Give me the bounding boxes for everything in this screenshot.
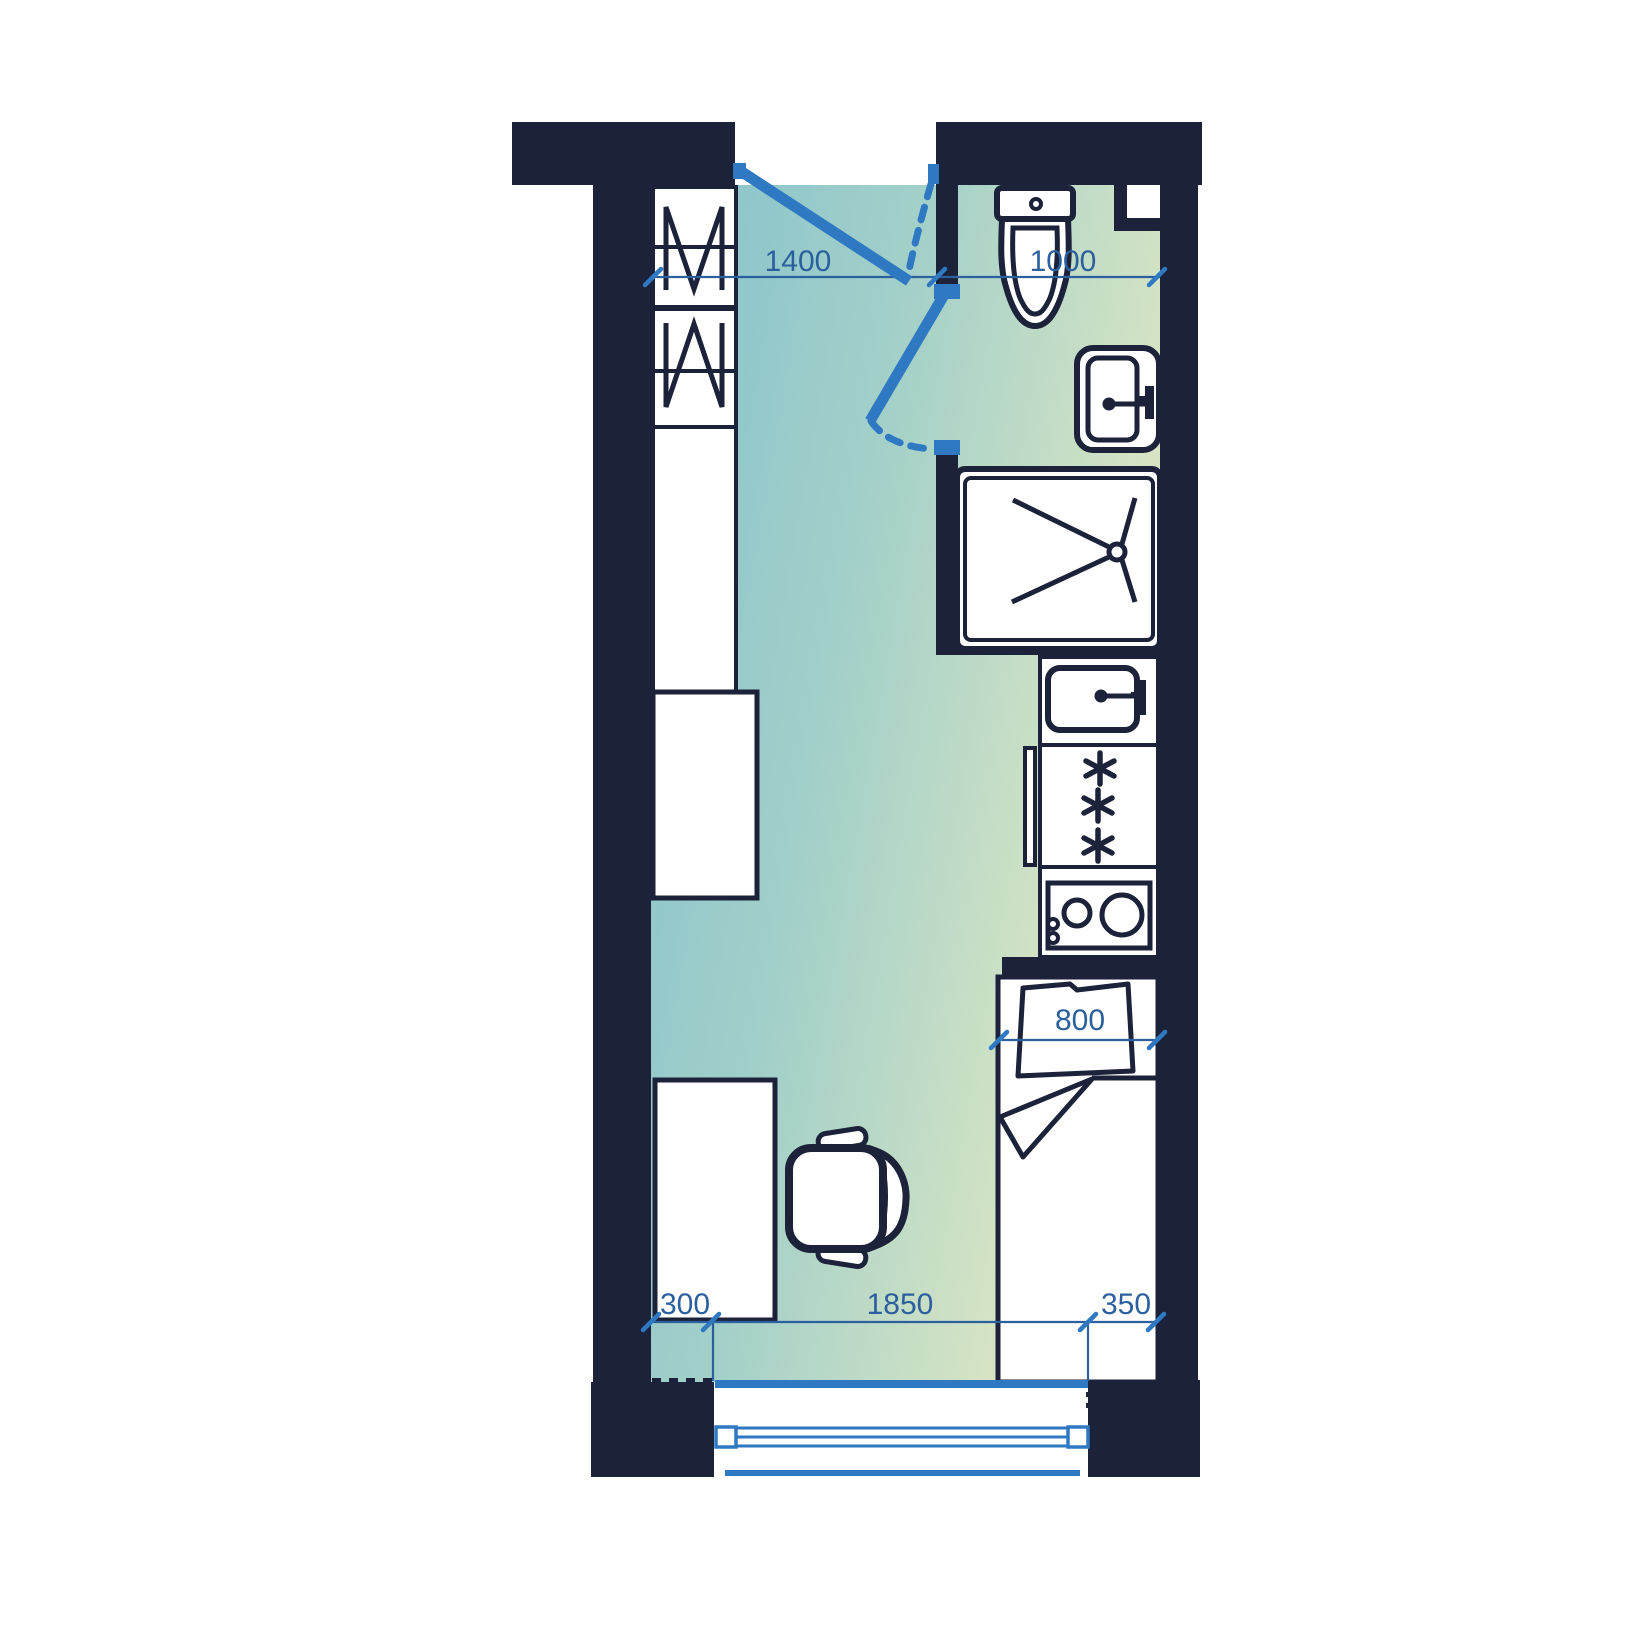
dimension-label-window-width: 1850 — [840, 1289, 960, 1321]
dimension-label-left-segment: 300 — [625, 1289, 745, 1321]
window — [715, 1380, 1088, 1476]
dimension-label-entry-width: 1400 — [738, 246, 858, 278]
bathroom-door — [870, 284, 960, 455]
balcony-edge — [725, 1470, 1080, 1476]
dimension-label-bed-width: 800 — [1020, 1005, 1140, 1037]
dimension-lines — [643, 269, 1165, 1381]
door-swing-arc — [871, 421, 932, 449]
floor-plan: 1400 1000 800 300 1850 350 — [0, 0, 1629, 1629]
window-mullion — [716, 1427, 736, 1447]
window-mullion — [1068, 1427, 1088, 1447]
door-jamb — [934, 440, 960, 455]
door-swing-arc — [908, 184, 931, 275]
dimension-label-bathroom-width: 1000 — [1003, 246, 1123, 278]
window-sill-line — [715, 1380, 1088, 1388]
dimension-label-right-segment: 350 — [1066, 1289, 1186, 1321]
door-leaf — [870, 295, 944, 421]
